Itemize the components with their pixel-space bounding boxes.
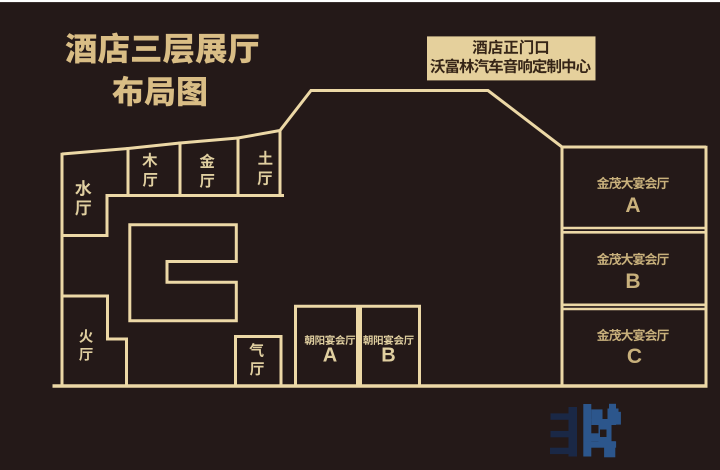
svg-text:B: B (625, 270, 640, 293)
svg-text:C: C (627, 345, 642, 368)
svg-text:A: A (625, 194, 640, 217)
svg-text:B: B (381, 345, 395, 367)
svg-text:A: A (323, 345, 337, 367)
